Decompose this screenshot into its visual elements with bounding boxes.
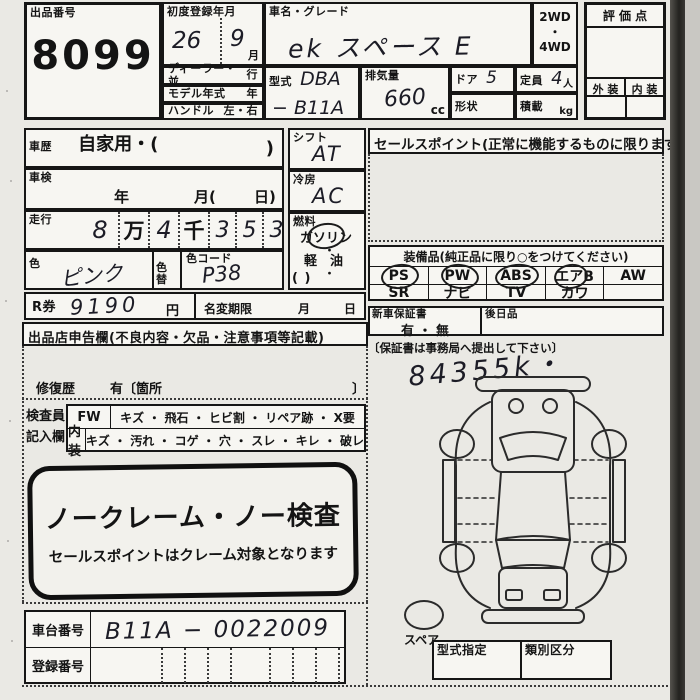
left-side-panel: [456, 402, 490, 608]
fuel-dot2: ・: [324, 265, 335, 281]
capacity-label: 定員: [517, 72, 546, 89]
headrest-right: [543, 399, 557, 413]
equipment-cell-navi: ナビ: [429, 285, 488, 301]
cell-divider: [625, 97, 627, 117]
warranty-box: 新車保証書 有 ・ 無 後日品: [368, 306, 664, 336]
inspector-row-fw: FW キズ ・ 飛石 ・ ヒビ割 ・ リペア跡 ・ X要: [68, 406, 364, 429]
class-division-label: 類別区分: [522, 642, 610, 659]
cell-divider: [315, 648, 317, 683]
doors-value: 5: [486, 68, 497, 88]
equipment-label: SR: [388, 285, 409, 301]
color-change-label: 色替: [154, 252, 180, 296]
repair-history-label: 修復歴: [36, 378, 75, 397]
mileage-unit-man: 万: [120, 212, 150, 248]
type-designation-cell: 型式指定: [434, 642, 522, 678]
equipment-label: エアB: [555, 266, 594, 286]
model-code-line2: − B11A: [272, 97, 344, 119]
rear-bumper: [476, 377, 590, 391]
headlight-right: [544, 590, 560, 600]
no-claim-stamp: ノークレーム・ノー検査 セールスポイントはクレーム対象となります: [27, 462, 359, 601]
equipment-table: 装備品(純正品に限り○をつけてください) PS PW ABS エアB AW: [368, 245, 664, 301]
right-side-panel: [576, 402, 610, 608]
car-diagram: [428, 374, 640, 626]
scan-noise: [5, 300, 7, 302]
drive-type-cell: 2WD ・ 4WD: [532, 2, 578, 66]
capacity-cell: 定員 4 人: [515, 66, 578, 93]
displacement-label: 排気量: [362, 68, 448, 84]
name-change-label: 名変期限: [204, 300, 252, 317]
hood: [499, 568, 567, 608]
inspection-month-label: 月(: [194, 186, 216, 207]
mileage-digit: 4: [150, 212, 180, 248]
headlight-left: [506, 590, 522, 600]
sales-point-header-box: セールスポイント(正常に機能するものに限ります): [368, 128, 664, 154]
model-year-row: モデル年式 年: [162, 85, 264, 103]
interior-items: キズ ・ 汚れ ・ コゲ ・ 穴 ・ スレ ・ キレ ・ 破レ: [86, 429, 364, 451]
inspector-column-label: 検査員 記入欄: [26, 407, 65, 449]
scan-noise: [6, 90, 8, 92]
recycle-value: 9190: [69, 292, 140, 320]
model-year-label: モデル年式: [168, 88, 226, 100]
exterior-label: 外 装: [587, 79, 626, 95]
doors-label: ドア: [452, 71, 481, 88]
inspection-box: 車検 年 月( 日): [24, 168, 284, 210]
inspection-year-label: 年: [114, 186, 129, 207]
load-cell: 積載 kg: [515, 93, 578, 120]
scan-noise: [9, 420, 11, 422]
inspection-day-label: 日): [254, 186, 276, 207]
dotted-separator: [366, 602, 368, 685]
exhibit-number-label: 出品番号: [27, 5, 159, 21]
inspector-row-interior: 内装 キズ ・ 汚れ ・ コゲ ・ 穴 ・ スレ ・ キレ ・ 破レ: [68, 429, 364, 451]
shape-cell: 形状: [450, 93, 515, 120]
car-name-box: 車名・グレード ek スペース E: [264, 2, 532, 66]
color-label: 色: [26, 255, 44, 272]
registration-row: 登録番号: [26, 648, 344, 683]
first-registration-box: 初度登録年月 26 9 月: [162, 2, 264, 66]
cell-divider: [194, 294, 196, 318]
shift-value: AT: [312, 142, 342, 166]
equipment-label: ナビ: [443, 283, 471, 303]
month-unit-label: 月: [248, 47, 259, 63]
registration-label: 登録番号: [26, 648, 91, 683]
history-close-paren: ): [266, 138, 274, 159]
headrest-left: [509, 399, 523, 413]
scan-noise: [7, 540, 9, 542]
color-code-cell: 色コード P38: [184, 252, 282, 288]
dealer-parallel-row: ディーラー・並 行: [162, 66, 264, 85]
fw-items: キズ ・ 飛石 ・ ヒビ割 ・ リペア跡 ・ X要: [111, 406, 364, 428]
displacement-unit: cc: [431, 103, 445, 117]
car-name-label: 車名・グレード: [266, 4, 530, 20]
fuel-box: 燃料 ガソリン ・ 軽 油 ・ ( ): [288, 212, 366, 290]
equipment-label: TV: [506, 285, 526, 301]
inspector-label-line1: 検査員: [26, 407, 65, 428]
equipment-label: PS: [389, 268, 409, 284]
roof-panel: [496, 472, 570, 540]
type-designation-table: 型式指定 類別区分: [432, 640, 612, 680]
drive-4wd: 4WD: [534, 40, 576, 55]
cell-divider: [230, 648, 232, 683]
exterior-interior-header: 外 装 内 装: [587, 77, 663, 97]
mileage-digit: 3: [264, 212, 291, 248]
equipment-label: ABS: [500, 268, 532, 284]
name-change-day: 日: [344, 300, 356, 317]
recycle-unit: 円: [166, 300, 179, 319]
score-box: 評 価 点 外 装 内 装: [584, 2, 666, 120]
ac-value: AC: [312, 184, 345, 208]
exhibit-number-value: 8099: [27, 33, 159, 79]
first-registration-label: 初度登録年月: [164, 4, 262, 20]
capacity-unit: 人: [563, 75, 573, 90]
inspector-table: FW キズ ・ 飛石 ・ ヒビ割 ・ リペア跡 ・ X要 内装 キズ ・ 汚れ …: [66, 404, 366, 452]
history-value: 自家用・(: [78, 134, 158, 155]
cell-divider: [161, 648, 163, 683]
class-division-cell: 類別区分: [522, 642, 610, 678]
mileage-digit: 3: [210, 212, 237, 248]
first-registration-month: 9: [230, 26, 245, 52]
equipment-cell-sr: SR: [370, 285, 429, 301]
exhibit-number-box: 出品番号 8099: [24, 2, 162, 120]
equipment-label: カワ: [561, 283, 589, 303]
mileage-unit-sen: 千: [180, 212, 210, 248]
chassis-value: B11A − 0022009: [91, 610, 345, 649]
ac-box: 冷房 AC: [288, 170, 366, 212]
capacity-value: 4: [551, 68, 562, 89]
equipment-label: AW: [620, 268, 646, 284]
cell-divider: [292, 648, 294, 683]
color-value: ピンク: [59, 257, 125, 293]
interior-row-label: 内装: [68, 429, 86, 451]
cell-divider: [220, 18, 222, 64]
auction-sheet: 出品番号 8099 初度登録年月 26 9 月 ディーラー・並 行 モデル年式 …: [0, 0, 700, 700]
equipment-cell-empty: [604, 285, 662, 301]
color-code-value: P38: [201, 260, 242, 287]
chassis-table: 車台番号 B11A − 0022009 登録番号: [24, 610, 346, 684]
equipment-label: PW: [445, 268, 471, 284]
equipment-cell-airbag: エアB: [546, 267, 605, 284]
rocker-left: [443, 460, 455, 542]
first-registration-year: 26: [172, 28, 201, 54]
declaration-header-box: 出品店申告欄(不良内容・欠品・注意事項等記載): [22, 322, 368, 346]
load-unit: kg: [559, 106, 573, 117]
color-change-cell: 色替: [152, 252, 182, 288]
stamp-subtitle: セールスポイントはクレーム対象となります: [33, 542, 353, 567]
spare-tire-shape: [404, 600, 444, 630]
handle-row: ハンドル 左・右: [162, 103, 264, 120]
equipment-cell-kawa: カワ: [546, 285, 605, 301]
dotted-separator: [22, 602, 368, 604]
equipment-cell-ps: PS: [370, 267, 429, 284]
cell-divider: [184, 648, 186, 683]
mileage-label: 走行: [29, 214, 52, 226]
cell-divider: [338, 648, 340, 683]
fuel-other-parens: ( ): [292, 271, 311, 286]
model-code-line1: DBA: [300, 68, 341, 90]
later-item-cell: 後日品: [482, 308, 662, 334]
model-code-label: 型式: [266, 74, 295, 90]
displacement-value: 660: [383, 85, 427, 113]
cell-divider: [269, 648, 271, 683]
registration-value-area: [91, 648, 344, 683]
dotted-separator: [22, 685, 668, 687]
chassis-label: 車台番号: [26, 612, 91, 647]
model-year-unit: 年: [247, 88, 259, 100]
dealer-parallel-label: ディーラー・並: [168, 63, 247, 87]
equipment-cell-pw: PW: [429, 267, 488, 284]
color-box: 色 ピンク 色替 色コード P38: [24, 250, 284, 290]
mileage-box: 走行 8 万 4 千 3 5 3 km: [24, 210, 284, 250]
history-box: 車歴 自家用・( ): [24, 128, 284, 168]
drive-dot: ・: [534, 25, 576, 40]
handle-value: 左・右: [224, 105, 259, 117]
scan-edge-bar: [670, 0, 685, 700]
recycle-label: R券: [32, 301, 56, 315]
inspection-label: 車検: [26, 170, 282, 186]
warranty-cell: 新車保証書 有 ・ 無: [370, 308, 482, 334]
cell-divider: [207, 648, 209, 683]
equipment-row-1: PS PW ABS エアB AW: [370, 267, 662, 285]
mileage-digit: 5: [237, 212, 264, 248]
history-label: 車歴: [26, 138, 55, 155]
score-label: 評 価 点: [587, 5, 663, 28]
equipment-cell-aw: AW: [604, 267, 662, 284]
chassis-row: 車台番号 B11A − 0022009: [26, 612, 344, 648]
displacement-box: 排気量 660 cc: [360, 66, 450, 120]
load-label: 積載: [517, 98, 546, 115]
shift-box: シフト AT: [288, 128, 366, 170]
car-name-value: ek スペース E: [288, 26, 474, 65]
equipment-cell-tv: TV: [487, 285, 546, 301]
inspector-label-line2: 記入欄: [26, 428, 65, 449]
shape-label: 形状: [452, 98, 481, 115]
recycle-ticket-box: R券 9190 円 名変期限 月 日: [24, 292, 366, 320]
sales-point-header: セールスポイント(正常に機能するものに限ります): [370, 130, 662, 156]
dotted-separator: [22, 398, 368, 400]
repair-history-close: 〕: [352, 378, 365, 397]
later-item-label: 後日品: [482, 308, 662, 322]
stamp-title: ノークレーム・ノー検査: [33, 495, 353, 536]
scan-noise: [11, 640, 13, 642]
name-change-month: 月: [298, 300, 310, 317]
interior-label: 内 装: [626, 79, 663, 95]
rear-window: [500, 432, 566, 460]
handle-label: ハンドル: [168, 105, 214, 117]
mileage-digit: 8: [82, 212, 120, 248]
equipment-cell-abs: ABS: [487, 267, 546, 284]
dealer-parallel-right: 行: [247, 69, 259, 81]
type-designation-label: 型式指定: [434, 642, 520, 659]
doors-cell: ドア 5: [450, 66, 515, 93]
rocker-right: [613, 460, 625, 542]
equipment-row-2: SR ナビ TV カワ: [370, 285, 662, 301]
equipment-header: 装備品(純正品に限り○をつけてください): [370, 247, 662, 267]
front-bumper: [482, 610, 584, 623]
scan-edge-margin: [685, 0, 700, 700]
warranty-value: 有 ・ 無: [370, 320, 480, 339]
repair-history-value: 有〔箇所: [110, 378, 162, 397]
model-code-box: 型式 DBA − B11A: [264, 66, 360, 120]
drive-2wd: 2WD: [534, 10, 576, 25]
sales-point-area: [368, 154, 664, 242]
scan-noise: [10, 180, 12, 182]
